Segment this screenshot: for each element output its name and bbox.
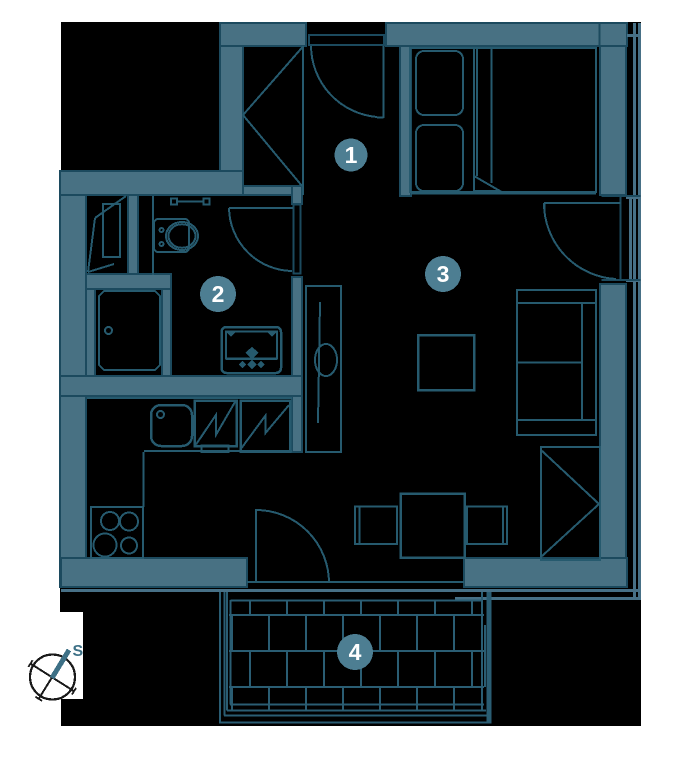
svg-text:4: 4 xyxy=(349,639,362,665)
svg-text:2: 2 xyxy=(212,281,225,307)
svg-text:1: 1 xyxy=(345,142,358,168)
svg-text:S: S xyxy=(73,643,84,660)
svg-text:3: 3 xyxy=(437,261,450,287)
